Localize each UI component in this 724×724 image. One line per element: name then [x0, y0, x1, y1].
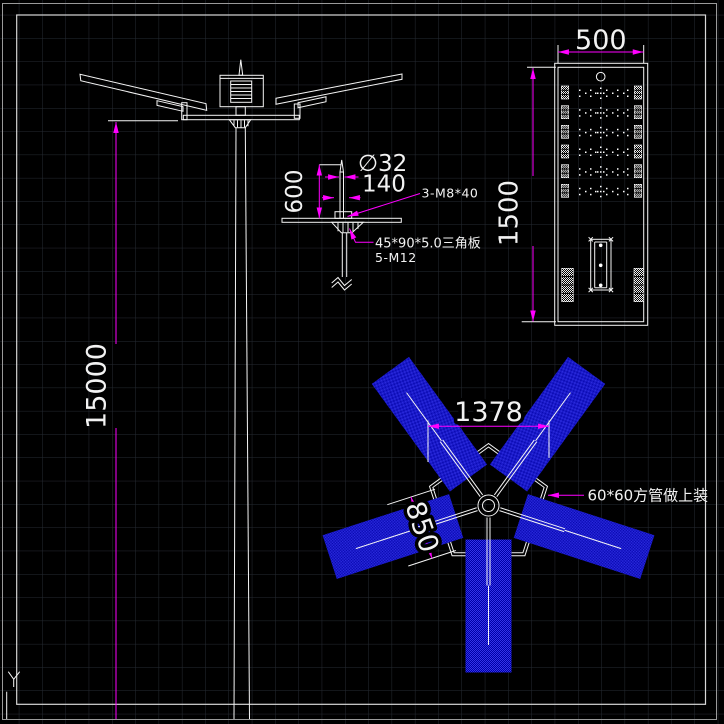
blade-bottom[interactable] [466, 518, 512, 673]
bracket-width-text: 140 [362, 172, 406, 198]
anchor-label-text: 5-M12 [375, 250, 417, 265]
panel-height-text: 1500 [495, 180, 525, 246]
rod-length-text: 600 [282, 170, 308, 214]
height-dim-text: 15000 [82, 343, 113, 429]
panel-width-text: 500 [575, 25, 627, 56]
drawing-svg[interactable]: 15000 600 ∅32 [0, 0, 724, 724]
bolt-label-text: 3-M8*40 [422, 186, 479, 201]
cad-canvas[interactable]: 15000 600 ∅32 [0, 0, 724, 724]
span-dim-text: 1378 [454, 397, 523, 428]
tube-label-text: 60*60方管做上装 [588, 487, 709, 505]
